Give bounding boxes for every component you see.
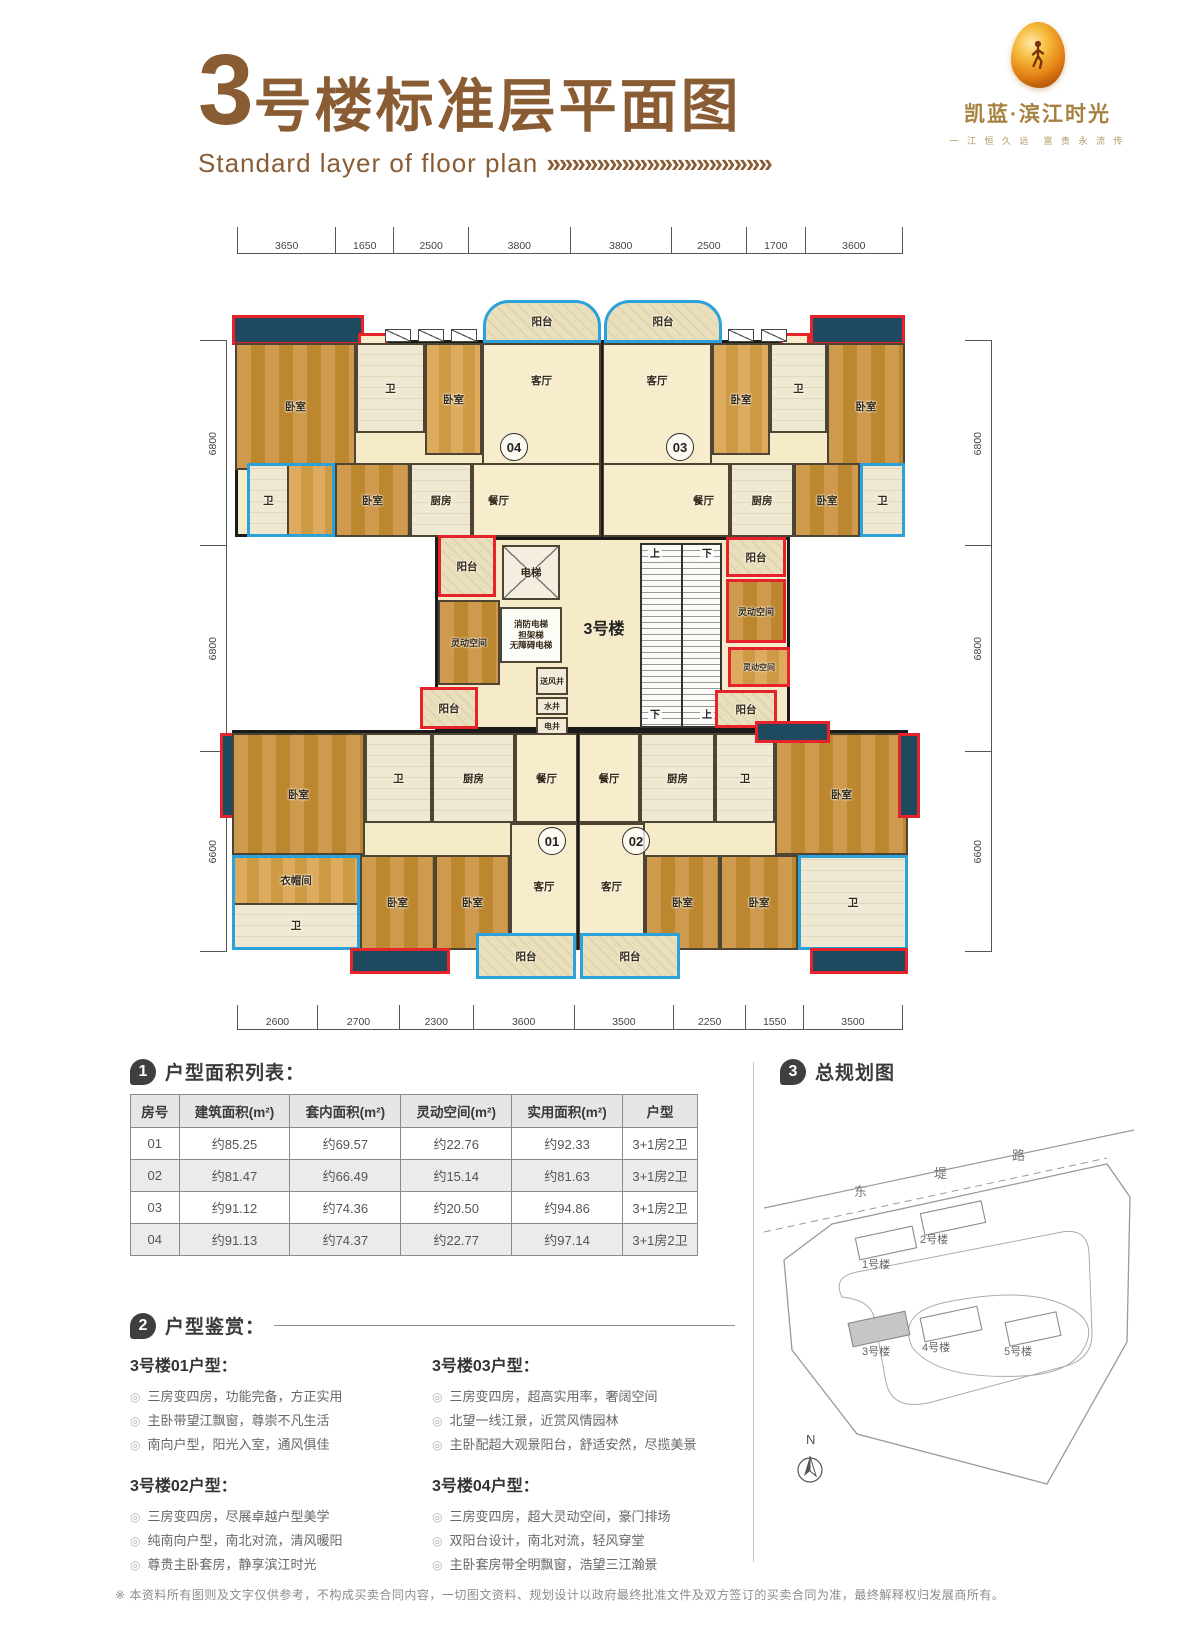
section-badge-1: 1 [130, 1059, 156, 1085]
bullet-icon: ◎ [432, 1385, 442, 1409]
unit-desc-02: 3号楼02户型： ◎三房变四房，尽展卓越户型美学 ◎纯南向户型，南北对流，清风暖… [130, 1472, 430, 1577]
cell: 约22.77 [401, 1224, 512, 1256]
desc-text: 纯南向户型，南北对流，清风暖阳 [147, 1529, 342, 1553]
room-flex-space: 灵动空间 [728, 647, 790, 687]
building-1: 1号楼 [855, 1226, 916, 1271]
poster-page: 3号楼标准层平面图 Standard layer of floor plan »… [0, 0, 1200, 1628]
room-bath: 卫 [860, 463, 905, 537]
desc-text: 双阳台设计，南北对流，轻风穿堂 [449, 1529, 644, 1553]
building-label: 2号楼 [920, 1232, 948, 1246]
bullet-icon: ◎ [130, 1505, 140, 1529]
cell: 04 [131, 1224, 180, 1256]
walking-person-icon [1026, 36, 1050, 74]
room-bedroom: 卧室 [720, 855, 798, 950]
road-label-char: 东 [854, 1184, 867, 1199]
room-bath: 卫 [365, 733, 432, 823]
unit-badge-01: 01 [538, 827, 566, 855]
floor-plan: 3650 1650 2500 3800 3800 2500 1700 3600 … [170, 215, 1050, 1030]
desc-text: 尊贵主卧套房，静享滨江时光 [147, 1553, 316, 1577]
dimension-line-left: 6800 6800 6600 [200, 340, 227, 952]
room-bedroom: 卧室 [235, 343, 356, 470]
desc-text: 三房变四房，尽展卓越户型美学 [147, 1505, 329, 1529]
dim-segment: 2600 [237, 1005, 318, 1029]
section-title: 总规划图 [815, 1058, 895, 1085]
bay-window [810, 948, 908, 974]
dim-value: 6800 [207, 637, 219, 660]
compass-n-label: N [806, 1432, 815, 1447]
cell: 约81.47 [179, 1160, 290, 1192]
room-flex-space: 灵动空间 [726, 579, 786, 643]
dim-segment: 3600 [806, 227, 903, 253]
desc-text: 主卧套房带全明飘窗，浩望三江瀚景 [449, 1553, 657, 1577]
room-balcony: 阳台 [604, 300, 722, 343]
fire-elevator-label: 消防电梯 [514, 619, 548, 630]
dim-segment: 2500 [672, 227, 747, 253]
building-label: 3号楼 [568, 615, 640, 639]
cell: 约74.36 [290, 1192, 401, 1224]
dim-segment: 3800 [469, 227, 570, 253]
dim-segment: 3500 [804, 1005, 903, 1029]
room-bedroom [287, 466, 332, 534]
dim-segment: 3500 [575, 1005, 674, 1029]
section-head-area-list: 1 户型面积列表： [130, 1058, 305, 1085]
bay-window [810, 315, 905, 345]
table-header-row: 房号 建筑面积(m²) 套内面积(m²) 灵动空间(m²) 实用面积(m²) 户… [131, 1095, 698, 1128]
dim-value: 3600 [842, 240, 865, 252]
bullet-icon: ◎ [432, 1505, 442, 1529]
room-kitchen: 厨房 [640, 733, 715, 823]
desc-text: 三房变四房，超大灵动空间，豪门排场 [449, 1505, 670, 1529]
building-label: 5号楼 [1004, 1344, 1032, 1358]
dimension-line-right: 6800 6800 6600 [965, 340, 992, 952]
site-plan-map: 东 堤 路 1号楼 2号楼 3号楼 4号楼 5号楼 N [762, 1092, 1147, 1512]
dim-segment: 2300 [400, 1005, 474, 1029]
cell: 约94.86 [512, 1192, 623, 1224]
dim-value: 2300 [425, 1016, 448, 1028]
bullet-icon: ◎ [432, 1553, 442, 1577]
road-edge [764, 1130, 1134, 1208]
room-cloakroom: 衣帽间 [235, 858, 357, 903]
dim-value: 2600 [266, 1016, 289, 1028]
unit-desc-title: 3号楼03户型： [432, 1352, 732, 1376]
fire-elevator-box: 消防电梯 担架梯 无障碍电梯 [500, 607, 562, 663]
unit-badge-02: 02 [622, 827, 650, 855]
room-bath: 卫 [250, 466, 287, 534]
col-header: 套内面积(m²) [290, 1095, 401, 1128]
air-shaft: 送风井 [536, 667, 568, 695]
dim-value: 3500 [841, 1016, 864, 1028]
stairwell: 上 下 下 上 [640, 543, 722, 728]
page-title: 3号楼标准层平面图 [198, 40, 771, 140]
dim-segment: 6800 [965, 340, 991, 546]
cell: 约85.25 [179, 1128, 290, 1160]
cell: 约91.12 [179, 1192, 290, 1224]
dim-segment: 2500 [394, 227, 469, 253]
section-head-masterplan: 3 总规划图 [780, 1058, 895, 1085]
dim-value: 6600 [207, 840, 219, 863]
dim-value: 2250 [698, 1016, 721, 1028]
dim-value: 2500 [697, 240, 720, 252]
accessible-elevator-label: 无障碍电梯 [510, 640, 553, 651]
room-bedroom: 卧室 [232, 733, 365, 855]
unit-desc-title: 3号楼02户型： [130, 1472, 430, 1496]
column-divider [753, 1062, 754, 1562]
table-row: 04 约91.13 约74.37 约22.77 约97.14 3+1房2卫 [131, 1224, 698, 1256]
dim-segment: 2250 [674, 1005, 746, 1029]
room-bedroom: 卧室 [360, 855, 435, 950]
room-balcony: 阳台 [476, 933, 576, 979]
window-icon [418, 329, 444, 342]
disclaimer: ※ 本资料所有图则及文字仅供参考，不构成买卖合同内容，一切图文资料、规划设计以政… [115, 1586, 1105, 1603]
dim-value: 6800 [972, 432, 984, 455]
rule-line [274, 1325, 735, 1326]
cell: 3+1房2卫 [623, 1128, 698, 1160]
dim-value: 3800 [609, 240, 632, 252]
brand-logo: 凯蓝·滨江时光 一 江 恒 久 远 富 贵 永 流 传 [930, 22, 1145, 147]
cell: 3+1房2卫 [623, 1192, 698, 1224]
room-kitchen: 厨房 [410, 463, 472, 537]
dim-segment: 2700 [318, 1005, 400, 1029]
cell: 3+1房2卫 [623, 1224, 698, 1256]
room-kitchen: 厨房 [432, 733, 515, 823]
room-elevator: 电梯 [502, 545, 560, 600]
building-4: 4号楼 [920, 1306, 982, 1354]
room-balcony: 阳台 [726, 537, 786, 577]
title-text: 号楼标准层平面图 [254, 78, 742, 140]
desc-text: 主卧配超大观景阳台，舒适安然，尽揽美景 [449, 1433, 696, 1457]
dim-value: 6800 [207, 432, 219, 455]
dim-segment: 3600 [474, 1005, 575, 1029]
window-icon [451, 329, 477, 342]
desc-text: 北望一线江景，近赏风情园林 [449, 1409, 618, 1433]
room-kitchen: 厨房 [730, 463, 794, 537]
desc-point: ◎南向户型，阳光入室，通风俱佳 [130, 1433, 430, 1457]
window-icon [728, 329, 754, 342]
window-icon [385, 329, 411, 342]
bay-window [755, 721, 830, 743]
desc-point: ◎三房变四房，尽展卓越户型美学 [130, 1505, 430, 1529]
dimension-line-bottom: 2600 2700 2300 3600 3500 2250 1550 3500 [237, 1005, 903, 1030]
bullet-icon: ◎ [130, 1529, 140, 1553]
chevron-arrows-icon: »»»»»»»»»»»»»»»»»» [546, 148, 770, 178]
stairs-down-label: 下 [648, 710, 662, 722]
desc-point: ◎北望一线江景，近赏风情园林 [432, 1409, 732, 1433]
desc-text: 三房变四房，功能完备，方正实用 [147, 1385, 342, 1409]
stretcher-elevator-label: 担架梯 [518, 630, 544, 641]
cell: 约69.57 [290, 1128, 401, 1160]
party-wall [577, 730, 579, 950]
unit-desc-04: 3号楼04户型： ◎三房变四房，超大灵动空间，豪门排场 ◎双阳台设计，南北对流，… [432, 1472, 732, 1577]
room-bedroom: 卧室 [775, 733, 908, 855]
room-balcony: 阳台 [438, 535, 496, 597]
stairs-up-label: 上 [648, 549, 662, 561]
desc-point: ◎主卧带望江飘窗，尊崇不凡生活 [130, 1409, 430, 1433]
dim-segment: 1700 [747, 227, 806, 253]
desc-point: ◎三房变四房，超高实用率，奢阔空间 [432, 1385, 732, 1409]
water-shaft: 水井 [536, 697, 568, 715]
stair-divider [681, 545, 683, 726]
desc-text: 南向户型，阳光入室，通风俱佳 [147, 1433, 329, 1457]
room-bath: 卫 [356, 343, 425, 433]
road-label-char: 堤 [934, 1166, 947, 1181]
dim-value: 2700 [347, 1016, 370, 1028]
unit-desc-title: 3号楼04户型： [432, 1472, 732, 1496]
room-bath: 卫 [235, 903, 357, 948]
section-title: 户型面积列表： [165, 1058, 305, 1085]
room-bedroom: 卧室 [827, 343, 905, 470]
room-dining: 餐厅 [515, 733, 578, 823]
dim-value: 2500 [419, 240, 442, 252]
desc-point: ◎纯南向户型，南北对流，清风暖阳 [130, 1529, 430, 1553]
room-bedroom: 卧室 [425, 343, 482, 455]
area-table: 房号 建筑面积(m²) 套内面积(m²) 灵动空间(m²) 实用面积(m²) 户… [130, 1094, 698, 1256]
building-5: 5号楼 [1004, 1312, 1061, 1358]
cell: 3+1房2卫 [623, 1160, 698, 1192]
dim-segment: 3800 [571, 227, 672, 253]
desc-point: ◎尊贵主卧套房，静享滨江时光 [130, 1553, 430, 1577]
building-2: 2号楼 [920, 1201, 986, 1246]
cell: 03 [131, 1192, 180, 1224]
subtitle-text: Standard layer of floor plan [198, 148, 538, 178]
table-row: 03 约91.12 约74.36 约20.50 约94.86 3+1房2卫 [131, 1192, 698, 1224]
dim-value: 6600 [972, 840, 984, 863]
dim-value: 3600 [512, 1016, 535, 1028]
desc-point: ◎双阳台设计，南北对流，轻风穿堂 [432, 1529, 732, 1553]
stairs-up-label: 上 [700, 710, 714, 722]
bullet-icon: ◎ [130, 1433, 140, 1457]
brand-name: 凯蓝·滨江时光 [930, 98, 1145, 128]
col-header: 房号 [131, 1095, 180, 1128]
cell: 约22.76 [401, 1128, 512, 1160]
dim-value: 3800 [508, 240, 531, 252]
dim-value: 1700 [764, 240, 787, 252]
unit-desc-title: 3号楼01户型： [130, 1352, 430, 1376]
bullet-icon: ◎ [130, 1553, 140, 1577]
room-balcony: 阳台 [580, 933, 680, 979]
dim-value: 3650 [275, 240, 298, 252]
table-row: 02 约81.47 约66.49 约15.14 约81.63 3+1房2卫 [131, 1160, 698, 1192]
section-head-appreciation: 2 户型鉴赏： [130, 1312, 735, 1339]
room-bath: 卫 [798, 855, 908, 950]
road-label-char: 路 [1012, 1148, 1025, 1163]
cell: 02 [131, 1160, 180, 1192]
cell: 约15.14 [401, 1160, 512, 1192]
cell: 约81.63 [512, 1160, 623, 1192]
unit-desc-01: 3号楼01户型： ◎三房变四房，功能完备，方正实用 ◎主卧带望江飘窗，尊崇不凡生… [130, 1352, 430, 1457]
col-header: 实用面积(m²) [512, 1095, 623, 1128]
dim-segment: 3650 [237, 227, 336, 253]
building-3: 3号楼 [848, 1311, 910, 1358]
table-row: 01 约85.25 约69.57 约22.76 约92.33 3+1房2卫 [131, 1128, 698, 1160]
room-flex-space: 灵动空间 [438, 600, 500, 685]
desc-point: ◎主卧套房带全明飘窗，浩望三江瀚景 [432, 1553, 732, 1577]
cell: 约91.13 [179, 1224, 290, 1256]
section-title: 户型鉴赏： [165, 1312, 265, 1339]
dim-value: 1550 [763, 1016, 786, 1028]
brand-tagline: 一 江 恒 久 远 富 贵 永 流 传 [930, 134, 1145, 147]
stairs-down-label: 下 [700, 549, 714, 561]
compass-icon: N [798, 1432, 822, 1482]
dim-segment: 6600 [965, 752, 991, 952]
bay-window [898, 733, 920, 818]
desc-point: ◎三房变四房，超大灵动空间，豪门排场 [432, 1505, 732, 1529]
building-label: 1号楼 [862, 1257, 890, 1271]
cell: 约97.14 [512, 1224, 623, 1256]
col-header: 户型 [623, 1095, 698, 1128]
room-balcony: 阳台 [483, 300, 601, 343]
bullet-icon: ◎ [432, 1409, 442, 1433]
cell: 01 [131, 1128, 180, 1160]
dim-segment: 6800 [200, 546, 226, 751]
section-badge-2: 2 [130, 1313, 156, 1339]
dim-value: 3500 [612, 1016, 635, 1028]
col-header: 灵动空间(m²) [401, 1095, 512, 1128]
bullet-icon: ◎ [130, 1409, 140, 1433]
room-dining: 餐厅 [602, 463, 730, 537]
dim-value: 1650 [353, 240, 376, 252]
suite-box: 衣帽间 卫 [232, 855, 360, 950]
section-badge-3: 3 [780, 1059, 806, 1085]
dim-segment: 1650 [336, 227, 394, 253]
bullet-icon: ◎ [432, 1529, 442, 1553]
unit-desc-03: 3号楼03户型： ◎三房变四房，超高实用率，奢阔空间 ◎北望一线江景，近赏风情园… [432, 1352, 732, 1457]
building-label: 3号楼 [862, 1344, 890, 1358]
bay-window [232, 315, 364, 345]
room-bath: 卫 [770, 343, 827, 433]
unit-badge-03: 03 [666, 433, 694, 461]
page-subtitle: Standard layer of floor plan »»»»»»»»»»»… [198, 148, 771, 179]
room-dining: 餐厅 [472, 463, 601, 537]
party-wall [601, 340, 603, 537]
cell: 约92.33 [512, 1128, 623, 1160]
window-icon [761, 329, 787, 342]
col-header: 建筑面积(m²) [179, 1095, 290, 1128]
dim-segment: 6800 [965, 546, 991, 751]
building-label: 4号楼 [922, 1340, 950, 1354]
dimension-line-top: 3650 1650 2500 3800 3800 2500 1700 3600 [237, 227, 903, 254]
room-bedroom: 卧室 [794, 463, 860, 537]
bullet-icon: ◎ [130, 1385, 140, 1409]
room-balcony: 阳台 [420, 687, 478, 729]
cell: 约74.37 [290, 1224, 401, 1256]
bay-window [350, 948, 450, 974]
room-dining: 餐厅 [578, 733, 640, 823]
dim-segment: 1550 [746, 1005, 803, 1029]
cell: 约20.50 [401, 1192, 512, 1224]
title-block: 3号楼标准层平面图 Standard layer of floor plan »… [198, 40, 771, 179]
desc-text: 主卧带望江飘窗，尊崇不凡生活 [147, 1409, 329, 1433]
dim-value: 6800 [972, 637, 984, 660]
dim-segment: 6800 [200, 340, 226, 546]
desc-point: ◎主卧配超大观景阳台，舒适安然，尽揽美景 [432, 1433, 732, 1457]
room-bedroom: 卧室 [335, 463, 410, 537]
amber-stone-icon [1011, 22, 1065, 88]
unit-badge-04: 04 [500, 433, 528, 461]
room-bath: 卫 [715, 733, 775, 823]
desc-point: ◎三房变四房，功能完备，方正实用 [130, 1385, 430, 1409]
room-bedroom: 卧室 [712, 343, 770, 455]
desc-text: 三房变四房，超高实用率，奢阔空间 [449, 1385, 657, 1409]
title-number: 3 [198, 40, 254, 140]
suite-box: 卫 [247, 463, 335, 537]
cell: 约66.49 [290, 1160, 401, 1192]
bullet-icon: ◎ [432, 1433, 442, 1457]
